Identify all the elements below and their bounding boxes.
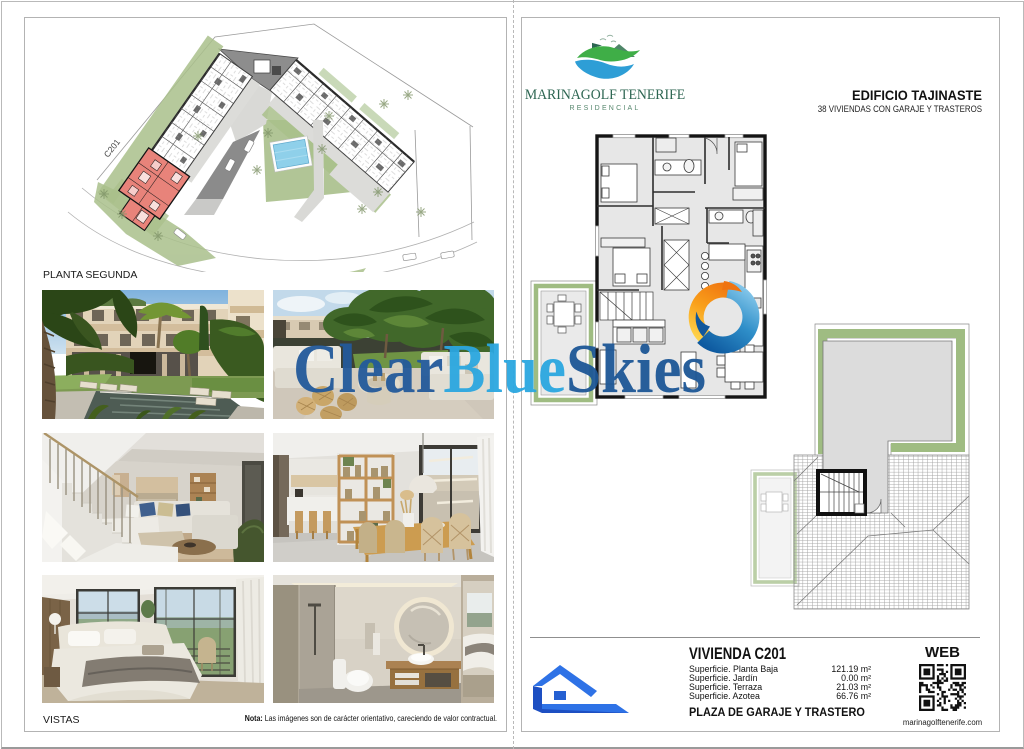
svg-text:C201: C201 bbox=[102, 137, 123, 159]
